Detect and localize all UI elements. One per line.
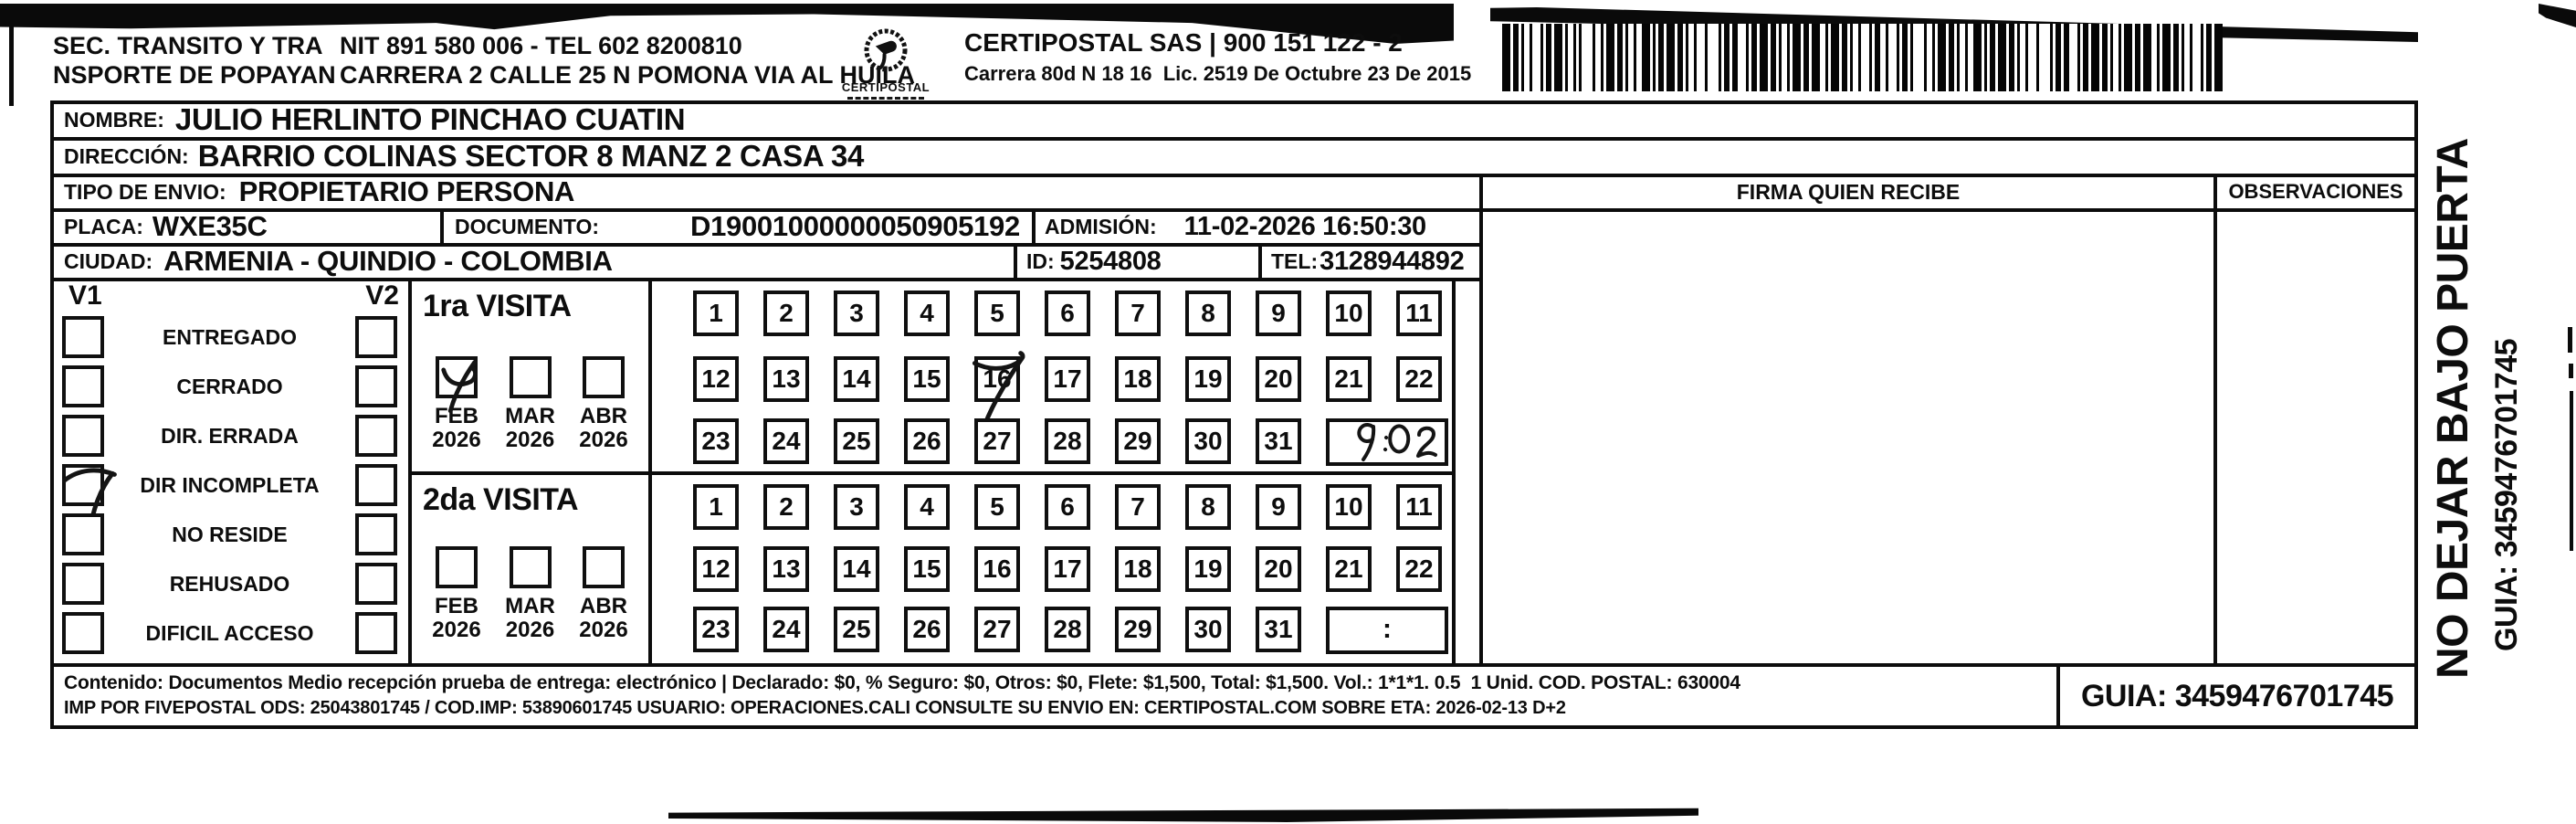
day-box: 30 — [1185, 607, 1231, 652]
first-visit-month-panel: 1ra VISITA FEB2026MAR2026ABR2026 — [412, 281, 648, 471]
barcode-gap — [1738, 24, 1746, 91]
barcode-gap — [1697, 24, 1705, 91]
day-box: 21 — [1326, 356, 1372, 402]
barcode-image — [1502, 24, 2233, 91]
day-box: 5 — [974, 484, 1020, 530]
table-line — [440, 208, 444, 247]
month-abbr: ABR — [580, 595, 627, 618]
day-box: 19 — [1185, 356, 1231, 402]
status-label: REHUSADO — [104, 572, 355, 597]
barcode-gap — [1913, 24, 1924, 91]
barcode-bar — [2214, 24, 2223, 91]
month-checkbox — [436, 546, 478, 588]
nombre-label: NOMBRE: — [64, 108, 164, 132]
day-box: 27 — [974, 607, 1020, 652]
v2-checkbox — [355, 464, 397, 506]
ciudad-label: CIUDAD: — [64, 249, 152, 274]
documento-label: DOCUMENTO: — [455, 215, 599, 239]
month-checkbox — [583, 356, 625, 398]
second-visit-day-grid: 1234567891011121314151617181920212223242… — [652, 475, 1452, 663]
day-box: 30 — [1185, 418, 1231, 464]
footer-content-line: Contenido: Documentos Medio recepción pr… — [64, 672, 1740, 694]
day-box: 1 — [693, 291, 739, 336]
v2-header: V2 — [352, 281, 399, 312]
field-direccion: DIRECCIÓN: BARRIO COLINAS SECTOR 8 MANZ … — [64, 139, 864, 174]
v1-header: V1 — [68, 281, 116, 312]
day-box: 4 — [904, 484, 950, 530]
day-box: 20 — [1256, 356, 1301, 402]
day-box: 25 — [834, 607, 879, 652]
barcode-bar — [1793, 24, 1801, 91]
scan-artifact-right-edge-2 — [2569, 364, 2573, 378]
day-box: 13 — [763, 546, 809, 592]
status-row: DIFICIL ACCESO — [54, 608, 408, 658]
day-box: 2 — [763, 484, 809, 530]
day-box: 12 — [693, 546, 739, 592]
day-box: 1 — [693, 484, 739, 530]
field-id: ID: 5254808 — [1026, 245, 1161, 278]
side-note-warning: NO DEJAR BAJO PUERTA — [2424, 108, 2483, 679]
v2-checkbox — [355, 513, 397, 555]
month-abbr: ABR — [580, 405, 627, 428]
tel-value: 3128944892 — [1320, 247, 1464, 277]
month-year: 2026 — [579, 618, 627, 642]
day-box: 28 — [1045, 418, 1090, 464]
barcode-gap — [1708, 24, 1719, 91]
barcode-bar — [1812, 24, 1820, 91]
field-ciudad: CIUDAD: ARMENIA - QUINDIO - COLOMBIA — [64, 245, 613, 278]
barcode-bar — [2091, 24, 2099, 91]
barcode-bar — [2143, 24, 2151, 91]
v1-checkbox — [62, 415, 104, 457]
barcode-gap — [2028, 24, 2036, 91]
barcode-bar — [2124, 24, 2132, 91]
tipo-envio-label: TIPO DE ENVIO: — [64, 180, 226, 205]
status-label: CERRADO — [104, 375, 355, 399]
status-label: DIR. ERRADA — [104, 424, 355, 449]
carrier-title: CERTIPOSTAL SAS | 900 151 122 - 2 — [964, 27, 1403, 58]
footer-imp-line: IMP POR FIVEPOSTAL ODS: 25043801745 / CO… — [64, 698, 1566, 719]
id-value: 5254808 — [1060, 247, 1162, 277]
day-box: 9 — [1256, 484, 1301, 530]
day-box: 25 — [834, 418, 879, 464]
day-box: 23 — [693, 418, 739, 464]
barcode-gap — [1861, 24, 1869, 91]
first-visit-months: FEB2026MAR2026ABR2026 — [412, 356, 648, 452]
day-box: 17 — [1045, 356, 1090, 402]
day-box: 2 — [763, 291, 809, 336]
barcode-gap — [1582, 24, 1593, 91]
status-label: NO RESIDE — [104, 523, 355, 547]
day-box: 27 — [974, 418, 1020, 464]
day-box: 12 — [693, 356, 739, 402]
month-cell: FEB2026 — [426, 546, 487, 642]
month-abbr: MAR — [505, 405, 555, 428]
day-box: 11 — [1396, 484, 1442, 530]
second-visit-month-panel: 2da VISITA FEB2026MAR2026ABR2026 — [412, 475, 648, 663]
day-box: 21 — [1326, 546, 1372, 592]
time-colon: : — [1330, 610, 1445, 649]
placa-label: PLACA: — [64, 215, 143, 239]
day-box: 10 — [1326, 484, 1372, 530]
admision-value: 11-02-2026 16:50:30 — [1184, 212, 1426, 242]
v2-checkbox — [355, 365, 397, 407]
barcode-gap — [2069, 24, 2077, 91]
status-label: ENTREGADO — [104, 325, 355, 350]
month-cell: ABR2026 — [573, 546, 634, 642]
barcode-gap — [1532, 24, 1540, 91]
day-box: 31 — [1256, 418, 1301, 464]
v2-checkbox — [355, 563, 397, 605]
day-box: 22 — [1396, 356, 1442, 402]
day-box: 14 — [834, 546, 879, 592]
month-checkbox — [510, 546, 552, 588]
placa-value: WXE35C — [152, 210, 268, 243]
time-box: : — [1326, 607, 1448, 654]
day-box: 28 — [1045, 607, 1090, 652]
month-cell: FEB2026 — [426, 356, 487, 452]
v1-checkbox — [62, 464, 104, 506]
day-box: 7 — [1115, 291, 1161, 336]
month-abbr: MAR — [505, 595, 555, 618]
sender-address: CARRERA 2 CALLE 25 N POMONA VIA AL HUILA — [340, 60, 915, 90]
day-box: 8 — [1185, 291, 1231, 336]
scan-artifact-right-edge-1 — [2568, 327, 2572, 353]
month-year: 2026 — [506, 618, 554, 642]
barcode-bar — [1973, 24, 1982, 91]
barcode-bar — [1760, 24, 1768, 91]
table-line — [1452, 278, 1456, 667]
status-header-row: V1 V2 — [54, 281, 408, 312]
barcode-bar — [1502, 24, 1510, 91]
logo-wordmark: CERTIPOSTAL — [836, 80, 935, 94]
day-box: 31 — [1256, 607, 1301, 652]
day-box: 16 — [974, 356, 1020, 402]
field-documento: DOCUMENTO: D19001000000050905192 — [455, 210, 1020, 243]
day-box: 26 — [904, 418, 950, 464]
day-box: 14 — [834, 356, 879, 402]
day-box: 9 — [1256, 291, 1301, 336]
day-box: 24 — [763, 418, 809, 464]
tel-label: TEL: — [1271, 249, 1318, 274]
day-box: 6 — [1045, 291, 1090, 336]
status-row: DIR INCOMPLETA — [54, 460, 408, 510]
barcode-bar — [2162, 24, 2171, 91]
day-box: 13 — [763, 356, 809, 402]
side-note-guia: GUIA: 3459476701745 — [2483, 108, 2530, 679]
observaciones-area — [2217, 212, 2414, 663]
direccion-value: BARRIO COLINAS SECTOR 8 MANZ 2 CASA 34 — [198, 139, 864, 174]
month-cell: ABR2026 — [573, 356, 634, 452]
v2-checkbox — [355, 612, 397, 654]
field-placa: PLACA: WXE35C — [64, 210, 268, 243]
day-box: 3 — [834, 484, 879, 530]
status-row: DIR. ERRADA — [54, 411, 408, 460]
day-box: 6 — [1045, 484, 1090, 530]
scan-artifact-left-edge — [9, 18, 14, 106]
day-box: 20 — [1256, 546, 1301, 592]
day-box: 29 — [1115, 607, 1161, 652]
certipostal-logo: CERTIPOSTAL — [836, 26, 935, 100]
carrier-address: Carrera 80d N 18 16 Lic. 2519 De Octubre… — [964, 62, 1471, 86]
scan-artifact-bottom-strip — [668, 808, 1698, 822]
barcode-bar — [1606, 24, 1614, 91]
day-box: 15 — [904, 356, 950, 402]
firma-column-header: FIRMA QUIEN RECIBE — [1483, 175, 2213, 208]
status-label: DIR INCOMPLETA — [104, 473, 355, 498]
month-checkbox — [583, 546, 625, 588]
month-year: 2026 — [506, 428, 554, 452]
first-visit-day-grid: 1234567891011121314151617181920212223242… — [652, 281, 1452, 471]
day-box: 15 — [904, 546, 950, 592]
v2-checkbox — [355, 316, 397, 358]
field-tel: TEL: 3128944892 — [1271, 245, 1464, 278]
barcode-bar — [1554, 24, 1562, 91]
day-box: 8 — [1185, 484, 1231, 530]
day-box: 11 — [1396, 291, 1442, 336]
nombre-value: JULIO HERLINTO PINCHAO CUATIN — [175, 102, 685, 137]
barcode-bar — [1831, 24, 1839, 91]
month-abbr: FEB — [435, 595, 478, 618]
field-admision: ADMISIÓN: 11-02-2026 16:50:30 — [1045, 210, 1426, 243]
day-box: 18 — [1115, 546, 1161, 592]
table-line — [2414, 100, 2418, 729]
day-box: 29 — [1115, 418, 1161, 464]
day-box: 5 — [974, 291, 1020, 336]
v1-checkbox — [62, 563, 104, 605]
day-box: 24 — [763, 607, 809, 652]
direccion-label: DIRECCIÓN: — [64, 144, 189, 169]
table-line — [1014, 243, 1017, 281]
scan-artifact-right-edge-3 — [2570, 391, 2573, 551]
v1-checkbox — [62, 316, 104, 358]
firma-signature-area — [1483, 212, 2213, 663]
v2-checkbox — [355, 415, 397, 457]
barcode-gap — [2192, 24, 2201, 91]
status-rows: ENTREGADOCERRADODIR. ERRADADIR INCOMPLET… — [54, 312, 408, 658]
day-box: 16 — [974, 546, 1020, 592]
barcode-bar — [1642, 24, 1650, 91]
barcode-gap — [2039, 24, 2050, 91]
delivery-status-panel: V1 V2 ENTREGADOCERRADODIR. ERRADADIR INC… — [54, 281, 408, 663]
side-note-rotated: NO DEJAR BAJO PUERTA GUIA: 3459476701745 — [2424, 108, 2552, 679]
day-box: 26 — [904, 607, 950, 652]
status-header-spacer — [116, 281, 352, 312]
status-row: ENTREGADO — [54, 312, 408, 362]
day-box: 19 — [1185, 546, 1231, 592]
month-checkbox — [436, 356, 478, 398]
second-visit-title: 2da VISITA — [423, 482, 648, 517]
documento-value: D19001000000050905192 — [690, 210, 1020, 243]
certipostal-logo-icon — [861, 26, 910, 75]
table-line — [1032, 208, 1036, 247]
v1-checkbox — [62, 365, 104, 407]
sender-nit-tel: NIT 891 580 006 - TEL 602 8200810 — [340, 31, 915, 60]
day-box: 4 — [904, 291, 950, 336]
sender-name: SEC. TRANSITO Y TRA NSPORTE DE POPAYAN — [53, 31, 336, 90]
v1-checkbox — [62, 513, 104, 555]
day-box: 10 — [1326, 291, 1372, 336]
tipo-envio-value: PROPIETARIO PERSONA — [239, 175, 575, 208]
logo-tagline-squiggle — [847, 97, 924, 100]
sender-contact-block: NIT 891 580 006 - TEL 602 8200810 CARRER… — [340, 31, 915, 90]
day-box: 17 — [1045, 546, 1090, 592]
scan-artifact-corner-mark — [2539, 4, 2576, 27]
day-box: 3 — [834, 291, 879, 336]
month-cell: MAR2026 — [500, 546, 561, 642]
field-tipo-envio: TIPO DE ENVIO: PROPIETARIO PERSONA — [64, 175, 574, 208]
id-label: ID: — [1026, 249, 1055, 274]
barcode-gap — [1888, 24, 1897, 91]
status-label: DIFICIL ACCESO — [104, 621, 355, 646]
v1-checkbox — [62, 612, 104, 654]
day-box: 7 — [1115, 484, 1161, 530]
guia-number-cell: GUIA: 3459476701745 — [2060, 663, 2414, 729]
barcode-bar — [1667, 24, 1675, 91]
ciudad-value: ARMENIA - QUINDIO - COLOMBIA — [163, 245, 613, 278]
field-nombre: NOMBRE: JULIO HERLINTO PINCHAO CUATIN — [64, 102, 685, 137]
admision-label: ADMISIÓN: — [1045, 215, 1157, 239]
observaciones-column-header: OBSERVACIONES — [2217, 175, 2414, 208]
day-box: 23 — [693, 607, 739, 652]
month-year: 2026 — [432, 618, 480, 642]
barcode-bar — [1998, 24, 2006, 91]
scanned-delivery-form: SEC. TRANSITO Y TRA NSPORTE DE POPAYAN N… — [0, 0, 2576, 824]
day-box: 18 — [1115, 356, 1161, 402]
month-year: 2026 — [579, 428, 627, 452]
second-visit-months: FEB2026MAR2026ABR2026 — [412, 546, 648, 642]
status-row: REHUSADO — [54, 559, 408, 608]
month-year: 2026 — [432, 428, 480, 452]
first-visit-title: 1ra VISITA — [423, 289, 648, 323]
status-row: CERRADO — [54, 362, 408, 411]
barcode-bar — [1938, 24, 1946, 91]
time-box: : — [1326, 418, 1448, 466]
table-line — [1258, 243, 1262, 281]
month-checkbox — [510, 356, 552, 398]
day-box: 22 — [1396, 546, 1442, 592]
month-cell: MAR2026 — [500, 356, 561, 452]
